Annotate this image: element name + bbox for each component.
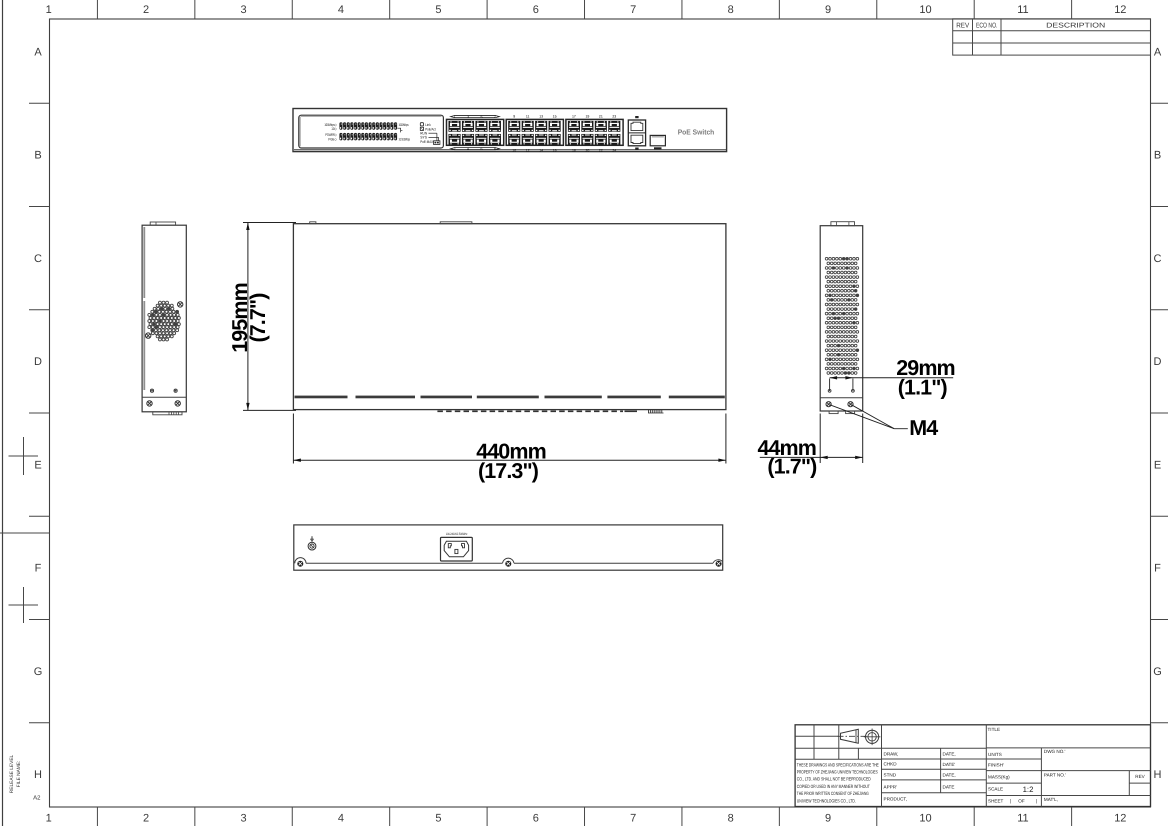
svg-text:10◇: 10◇ [331, 127, 337, 131]
svg-text:TITLE: TITLE [988, 727, 1001, 732]
svg-text:SCALE: SCALE [988, 787, 1003, 792]
svg-text:G: G [34, 666, 43, 678]
svg-text:PoE◇: PoE◇ [328, 137, 337, 141]
svg-text:7: 7 [494, 115, 496, 119]
svg-text:FILE NAME:: FILE NAME: [16, 761, 22, 788]
svg-text:11: 11 [1017, 812, 1028, 824]
svg-text:16: 16 [553, 148, 557, 152]
svg-text:MASS(Kg): MASS(Kg) [988, 775, 1010, 780]
svg-text:22: 22 [599, 148, 603, 152]
svg-text:6: 6 [480, 147, 482, 151]
svg-text:11: 11 [1017, 4, 1028, 16]
svg-text:D: D [34, 356, 42, 368]
svg-text:20: 20 [585, 148, 589, 152]
svg-text:9: 9 [825, 812, 831, 824]
svg-text:PoE-MAX: PoE-MAX [420, 140, 433, 144]
svg-text:3: 3 [467, 115, 469, 119]
svg-text:PART NO.': PART NO.' [1044, 773, 1066, 778]
svg-text:12: 12 [1114, 4, 1126, 16]
svg-text:UNITS: UNITS [988, 752, 1002, 757]
svg-text:C: C [1154, 253, 1162, 265]
svg-text:7: 7 [630, 812, 636, 824]
svg-text:DATE': DATE' [943, 762, 956, 767]
svg-text:COPIED OR USED IN ANY MANNER W: COPIED OR USED IN ANY MANNER WITHOUT [797, 784, 870, 789]
svg-text:A: A [34, 46, 42, 58]
svg-text:8: 8 [728, 4, 734, 16]
svg-text:C: C [34, 253, 42, 265]
svg-text:A: A [1154, 46, 1162, 58]
svg-text:7: 7 [630, 4, 636, 16]
svg-text:14: 14 [539, 148, 543, 152]
svg-text:G: G [1153, 666, 1162, 678]
svg-text:DESCRIPTION: DESCRIPTION [1046, 23, 1105, 30]
svg-text:2: 2 [143, 4, 149, 16]
svg-text:2: 2 [143, 812, 149, 824]
svg-text:11: 11 [526, 115, 530, 119]
svg-text:1000Mbps: 1000Mbps [399, 123, 409, 127]
svg-text:6: 6 [533, 4, 539, 16]
svg-text:APPR': APPR' [884, 785, 898, 790]
svg-text:4: 4 [338, 4, 344, 16]
svg-text:RELEASE LEVEL: RELEASE LEVEL [9, 754, 15, 793]
svg-text:8: 8 [728, 812, 734, 824]
svg-text:13: 13 [539, 115, 543, 119]
svg-text:19: 19 [585, 115, 589, 119]
svg-text:H: H [34, 769, 42, 781]
svg-text:B: B [34, 150, 41, 162]
svg-text:SYS: SYS [420, 136, 427, 140]
svg-text:DRAW,: DRAW, [884, 752, 899, 757]
svg-text:1: 1 [46, 4, 52, 16]
svg-text:FINISH': FINISH' [988, 763, 1004, 768]
svg-text:DATE,: DATE, [943, 773, 956, 778]
svg-text:E: E [34, 459, 41, 471]
svg-text:1: 1 [454, 115, 456, 119]
svg-text:5: 5 [435, 4, 441, 16]
svg-text:10: 10 [919, 4, 931, 16]
svg-text:A2: A2 [33, 795, 41, 802]
svg-text:D: D [1154, 356, 1162, 368]
svg-text:MAT'L,: MAT'L, [1044, 797, 1058, 802]
svg-text:12: 12 [526, 148, 530, 152]
svg-text:M4: M4 [909, 416, 938, 440]
svg-text:PROPERTY OF ZHEJIANG UNIVIEW T: PROPERTY OF ZHEJIANG UNIVIEW TECHNOLOGIE… [797, 770, 878, 775]
svg-text:1: 1 [46, 812, 52, 824]
svg-text:2: 2 [454, 147, 456, 151]
svg-text:PoE Switch: PoE Switch [678, 128, 715, 137]
svg-text:(1.1"): (1.1") [898, 375, 948, 399]
svg-text:|: | [1010, 799, 1011, 805]
svg-text:15: 15 [553, 115, 557, 119]
svg-text:|: | [1036, 799, 1037, 805]
svg-text:4: 4 [467, 147, 469, 151]
svg-text:9: 9 [825, 4, 831, 16]
svg-text:E: E [1154, 459, 1161, 471]
svg-text:UNIVIEW TECHNOLOGIES CO., LTD.: UNIVIEW TECHNOLOGIES CO., LTD. [797, 798, 856, 803]
svg-text:CHKD: CHKD [884, 762, 898, 767]
svg-text:THESE DRAWINGS AND SPECIFICATI: THESE DRAWINGS AND SPECIFICATIONS ARE TH… [797, 762, 879, 767]
svg-text:5: 5 [435, 812, 441, 824]
svg-text:24: 24 [612, 148, 616, 152]
svg-text:3: 3 [240, 4, 246, 16]
svg-text:SHEET: SHEET [988, 799, 1004, 804]
svg-text:B: B [1154, 150, 1161, 162]
svg-text:(1.7"): (1.7") [767, 454, 817, 478]
svg-text:12: 12 [1114, 812, 1126, 824]
svg-text:8: 8 [494, 147, 496, 151]
svg-text:DATE,: DATE, [943, 752, 956, 757]
svg-text:F: F [35, 563, 42, 575]
svg-text:4: 4 [338, 812, 344, 824]
svg-text:REV: REV [956, 23, 969, 30]
svg-text:21: 21 [599, 115, 603, 119]
svg-text:5: 5 [480, 115, 482, 119]
svg-text:10: 10 [919, 812, 931, 824]
svg-text:DWG NO.': DWG NO.' [1044, 749, 1066, 754]
svg-text:REV: REV [1135, 774, 1145, 779]
svg-text:(17.3"): (17.3") [478, 459, 539, 483]
svg-text:10/100Mbps: 10/100Mbps [399, 138, 411, 142]
svg-text:3: 3 [240, 812, 246, 824]
svg-text:DATE: DATE [943, 785, 955, 790]
svg-text:(7.7"): (7.7") [246, 293, 270, 343]
svg-text:PRODUCT,: PRODUCT, [884, 797, 907, 802]
svg-text:STND: STND [884, 773, 897, 778]
svg-text:CO., LTD. AND SHALL NOT BE REP: CO., LTD. AND SHALL NOT BE REPRODUCED [797, 777, 871, 782]
svg-text:1:2: 1:2 [1023, 785, 1034, 794]
svg-text:Link: Link [425, 123, 431, 127]
svg-text:THE PRIOR WRITTEN CONSENT OF Z: THE PRIOR WRITTEN CONSENT OF ZHEJIANG [797, 791, 869, 796]
svg-text:17: 17 [572, 115, 576, 119]
svg-text:6: 6 [533, 812, 539, 824]
svg-text:100-240VAC 50/60Hz: 100-240VAC 50/60Hz [446, 532, 468, 536]
svg-text:H: H [1154, 769, 1162, 781]
svg-text:10: 10 [512, 148, 516, 152]
svg-text:18: 18 [572, 148, 576, 152]
svg-text:OF: OF [1018, 799, 1025, 804]
svg-text:23: 23 [612, 115, 616, 119]
svg-text:ECO NO.: ECO NO. [976, 23, 998, 30]
svg-text:F: F [1154, 563, 1161, 575]
svg-text:9: 9 [513, 115, 515, 119]
